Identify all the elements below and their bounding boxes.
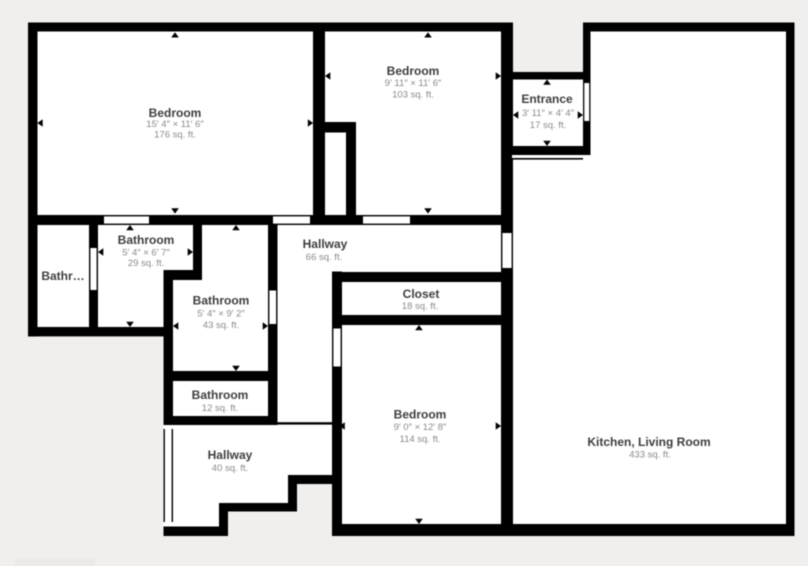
svg-text:9′ 0″ × 12′ 8″: 9′ 0″ × 12′ 8″ — [394, 422, 447, 433]
svg-text:Kitchen, Living Room: Kitchen, Living Room — [587, 435, 710, 449]
svg-text:Bathr…: Bathr… — [41, 269, 84, 283]
svg-text:40 sq. ft.: 40 sq. ft. — [212, 463, 248, 474]
svg-text:12 sq. ft.: 12 sq. ft. — [202, 403, 238, 414]
svg-text:5′ 4″ × 6′ 7″: 5′ 4″ × 6′ 7″ — [122, 248, 170, 259]
svg-text:Bathroom: Bathroom — [118, 233, 175, 247]
svg-text:103 sq. ft.: 103 sq. ft. — [392, 90, 434, 101]
svg-text:Bathroom: Bathroom — [192, 388, 249, 402]
svg-text:43 sq. ft.: 43 sq. ft. — [203, 320, 239, 331]
svg-text:433 sq. ft.: 433 sq. ft. — [629, 450, 671, 461]
svg-text:3′ 11″ × 4′ 4″: 3′ 11″ × 4′ 4″ — [522, 108, 575, 119]
svg-text:5′ 4″ × 9′ 2″: 5′ 4″ × 9′ 2″ — [197, 309, 245, 320]
svg-text:29 sq. ft.: 29 sq. ft. — [128, 258, 164, 269]
svg-text:114 sq. ft.: 114 sq. ft. — [399, 434, 440, 445]
svg-text:Entrance: Entrance — [521, 92, 573, 106]
svg-text:Bedroom: Bedroom — [387, 64, 440, 78]
svg-text:Bathroom: Bathroom — [193, 294, 250, 308]
svg-text:66 sq. ft.: 66 sq. ft. — [306, 252, 342, 263]
svg-text:Bedroom: Bedroom — [149, 106, 202, 120]
svg-text:176 sq. ft.: 176 sq. ft. — [154, 130, 196, 141]
svg-text:18 sq. ft.: 18 sq. ft. — [402, 301, 438, 312]
svg-text:15′ 4″ × 11′ 6″: 15′ 4″ × 11′ 6″ — [146, 119, 204, 130]
svg-text:Hallway: Hallway — [303, 237, 348, 251]
svg-text:Hallway: Hallway — [208, 448, 253, 462]
svg-text:17 sq. ft.: 17 sq. ft. — [530, 120, 566, 131]
svg-text:Closet: Closet — [403, 287, 440, 301]
svg-text:Bedroom: Bedroom — [394, 408, 447, 422]
svg-text:9′ 11″ × 11′ 6″: 9′ 11″ × 11′ 6″ — [385, 78, 442, 89]
